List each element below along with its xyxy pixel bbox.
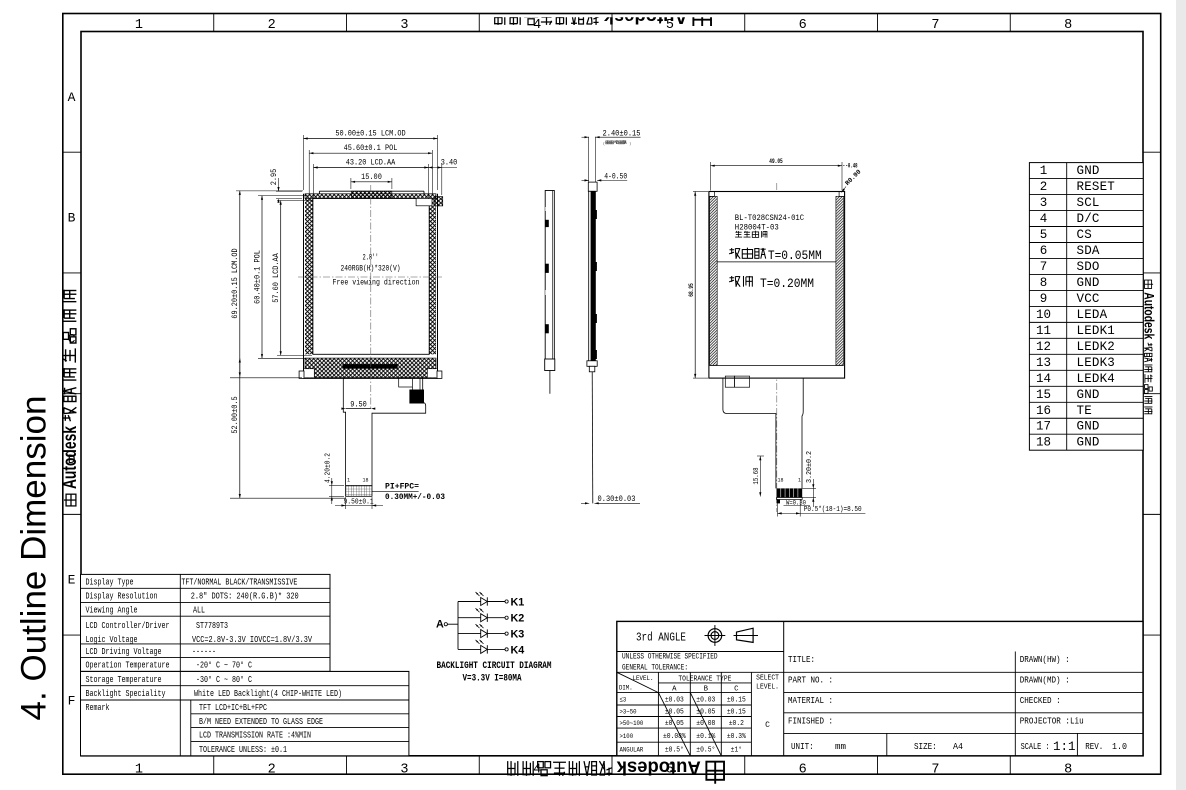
svg-text:DRAWN(HW) :: DRAWN(HW) : — [1020, 654, 1070, 665]
svg-text:7: 7 — [931, 18, 939, 33]
svg-text:1: 1 — [798, 478, 801, 484]
svg-text:R0.90: R0.90 — [844, 168, 863, 187]
svg-text:6: 6 — [799, 762, 807, 777]
svg-text:SDO: SDO — [1077, 260, 1100, 274]
svg-text:TOLERANCE TYPE: TOLERANCE TYPE — [678, 675, 731, 683]
svg-text:LCD Controller/Driver: LCD Controller/Driver — [86, 620, 170, 631]
svg-text:RESET: RESET — [1077, 180, 1116, 194]
svg-text:9: 9 — [1040, 292, 1048, 306]
svg-text:MATERIAL :: MATERIAL : — [788, 695, 833, 706]
svg-text:6: 6 — [1040, 244, 1048, 258]
svg-text:LEDK4: LEDK4 — [1077, 372, 1116, 386]
svg-text:2: 2 — [268, 18, 276, 33]
svg-text:16: 16 — [1036, 404, 1051, 418]
svg-text:ALL: ALL — [193, 605, 205, 616]
svg-text:VCC: VCC — [1077, 292, 1100, 306]
svg-text:-0.48: -0.48 — [846, 162, 858, 169]
svg-text:LEVEL.: LEVEL. — [633, 675, 654, 683]
svg-text:TE: TE — [1077, 404, 1092, 418]
svg-text:K1: K1 — [511, 597, 525, 609]
svg-text:±0.5°: ±0.5° — [665, 746, 684, 755]
svg-text:1: 1 — [135, 762, 143, 777]
svg-text:Operation Temperature: Operation Temperature — [86, 660, 170, 671]
svg-text:4. Outline Dimension: 4. Outline Dimension — [15, 396, 54, 721]
svg-text:B/M NEED EXTENDED TO GLASS EDG: B/M NEED EXTENDED TO GLASS EDGE — [199, 716, 323, 727]
svg-text:2.40±0.15: 2.40±0.15 — [603, 129, 641, 138]
svg-text:2.95: 2.95 — [271, 168, 279, 185]
svg-text:Autodesk: Autodesk — [60, 426, 81, 489]
svg-text:±0.03: ±0.03 — [665, 696, 684, 704]
svg-text:10: 10 — [1036, 308, 1051, 322]
svg-text:White LED Backlight(4 CHIP-WHI: White LED Backlight(4 CHIP-WHITE LED) — [194, 688, 342, 699]
svg-text:18: 18 — [777, 478, 783, 484]
svg-text:68.95: 68.95 — [688, 283, 695, 297]
svg-text:50.00±0.15 LCM.OD: 50.00±0.15 LCM.OD — [335, 130, 405, 139]
svg-text:Autodesk: Autodesk — [603, 6, 687, 27]
svg-text:±0.15: ±0.15 — [727, 696, 746, 704]
svg-text:15.00: 15.00 — [361, 173, 382, 182]
svg-text:VCC=2.8V-3.3V IOVCC=1.8V/3.3V: VCC=2.8V-3.3V IOVCC=1.8V/3.3V — [192, 634, 312, 645]
svg-text:Display Type: Display Type — [86, 577, 134, 588]
svg-text:LEDK3: LEDK3 — [1077, 356, 1116, 370]
svg-text:PI+FPC=: PI+FPC= — [385, 481, 419, 491]
svg-text:±1°: ±1° — [731, 746, 742, 755]
svg-text:240RGB(H)*320(V): 240RGB(H)*320(V) — [341, 265, 401, 274]
svg-text:-20° C ~ 70° C: -20° C ~ 70° C — [196, 660, 252, 671]
svg-text:2.8'': 2.8'' — [363, 254, 379, 263]
svg-text:3.40: 3.40 — [441, 159, 458, 168]
svg-text:V=3.3V I=80MA: V=3.3V I=80MA — [463, 674, 523, 685]
svg-text:PROJECTOR :Liu: PROJECTOR :Liu — [1020, 716, 1084, 727]
svg-text:LEVEL.: LEVEL. — [756, 683, 779, 691]
svg-text:TFT LCD+IC+BL+FPC: TFT LCD+IC+BL+FPC — [199, 702, 267, 713]
svg-text:SCALE :: SCALE : — [1021, 741, 1050, 752]
svg-text:18: 18 — [362, 478, 368, 484]
svg-text:LCD Driving Voltage: LCD Driving Voltage — [86, 646, 162, 657]
svg-text:A: A — [68, 90, 76, 105]
svg-text:2: 2 — [1040, 180, 1048, 194]
svg-text:±0.05: ±0.05 — [665, 708, 684, 716]
svg-text:12: 12 — [1036, 340, 1051, 354]
svg-text:4: 4 — [1040, 212, 1048, 226]
svg-text:C: C — [734, 686, 739, 694]
svg-text:K3: K3 — [511, 629, 525, 641]
svg-text:SDA: SDA — [1077, 244, 1100, 258]
svg-text:LCD TRANSMISSION RATE :4%MIN: LCD TRANSMISSION RATE :4%MIN — [199, 730, 311, 741]
svg-text:GND: GND — [1077, 276, 1100, 290]
svg-text:-30° C ~ 80° C: -30° C ~ 80° C — [196, 674, 252, 685]
svg-text:49.05: 49.05 — [769, 158, 783, 165]
svg-text:T=0.20MM: T=0.20MM — [760, 276, 814, 291]
svg-text:ST7789T3: ST7789T3 — [196, 620, 228, 631]
svg-text:1: 1 — [135, 18, 143, 33]
svg-text:8: 8 — [1040, 276, 1048, 290]
svg-text:UNLESS OTHERWISE SPECIFIED: UNLESS OTHERWISE SPECIFIED — [622, 653, 718, 662]
svg-text:Backlight Speciality: Backlight Speciality — [86, 688, 166, 699]
svg-text:CS: CS — [1077, 228, 1092, 242]
svg-text:Autodesk: Autodesk — [616, 757, 700, 778]
svg-text:15: 15 — [1036, 388, 1051, 402]
svg-text:>100: >100 — [620, 733, 634, 741]
svg-text:BACKLIGHT CIRCUIT DIAGRAM: BACKLIGHT CIRCUIT DIAGRAM — [437, 661, 552, 672]
svg-text:±0.2: ±0.2 — [729, 720, 744, 728]
svg-text:±0.08%: ±0.08% — [663, 733, 686, 741]
svg-text:): ) — [629, 141, 631, 146]
svg-text:>50~100: >50~100 — [620, 720, 644, 728]
svg-text:17: 17 — [1036, 420, 1051, 434]
svg-text:A4: A4 — [953, 741, 963, 752]
svg-text:FINISHED :: FINISHED : — [788, 716, 833, 727]
svg-text:GND: GND — [1077, 420, 1100, 434]
svg-text:0.30±0.03: 0.30±0.03 — [598, 495, 636, 504]
svg-text:4.20±0.2: 4.20±0.2 — [325, 453, 333, 483]
svg-text:6: 6 — [799, 18, 807, 33]
svg-text:TITLE:: TITLE: — [788, 654, 815, 665]
svg-text:mm: mm — [835, 741, 846, 752]
svg-text:3: 3 — [400, 18, 408, 33]
svg-text:7: 7 — [1040, 260, 1048, 274]
svg-text:1: 1 — [347, 478, 350, 484]
svg-text:43.20 LCD.AA: 43.20 LCD.AA — [346, 158, 396, 167]
svg-text:±0.15: ±0.15 — [727, 708, 746, 716]
svg-text:C: C — [765, 721, 770, 730]
svg-text:2: 2 — [268, 762, 276, 777]
svg-text:3: 3 — [1040, 196, 1048, 210]
svg-text:SIZE:: SIZE: — [914, 741, 937, 752]
svg-text:SELECT: SELECT — [756, 674, 779, 682]
svg-text:>3~50: >3~50 — [620, 708, 637, 716]
svg-text:DIM.: DIM. — [619, 685, 633, 693]
svg-text:±0.03: ±0.03 — [696, 696, 715, 704]
svg-text:F: F — [68, 693, 76, 708]
svg-text:GND: GND — [1077, 388, 1100, 402]
svg-text:GND: GND — [1077, 164, 1100, 178]
svg-text:±0.05: ±0.05 — [696, 708, 715, 716]
svg-text:2.8" DOTS: 240(R.G.B)* 320: 2.8" DOTS: 240(R.G.B)* 320 — [191, 591, 299, 602]
svg-text:Storage Temperature: Storage Temperature — [86, 674, 162, 685]
svg-text:57.60 LCD.AA: 57.60 LCD.AA — [273, 253, 281, 303]
svg-text:CHECKED :: CHECKED : — [1020, 695, 1061, 706]
svg-text:LEDK2: LEDK2 — [1077, 340, 1116, 354]
svg-text:9.50: 9.50 — [350, 401, 367, 409]
svg-text:7: 7 — [931, 762, 939, 777]
svg-text:DRAWN(MD) :: DRAWN(MD) : — [1020, 675, 1070, 686]
svg-text:1.0: 1.0 — [1112, 741, 1127, 752]
svg-text:K4: K4 — [511, 644, 525, 656]
svg-text:B: B — [704, 686, 709, 694]
svg-text:Logic Voltage: Logic Voltage — [86, 634, 138, 645]
svg-text:±0.5°: ±0.5° — [696, 746, 715, 755]
svg-text:45.60±0.1 POL: 45.60±0.1 POL — [344, 144, 398, 153]
svg-text:A: A — [672, 686, 677, 694]
svg-text:15.68: 15.68 — [753, 468, 761, 485]
svg-text:8: 8 — [1064, 762, 1072, 777]
svg-text:52.00±0.5: 52.00±0.5 — [232, 396, 240, 434]
svg-text:PART NO. :: PART NO. : — [788, 675, 833, 686]
svg-text:3rd ANGLE: 3rd ANGLE — [636, 632, 686, 645]
svg-text:Viewing Angle: Viewing Angle — [86, 605, 138, 616]
svg-text:LEDK1: LEDK1 — [1077, 324, 1116, 338]
svg-text:Free viewing direction: Free viewing direction — [333, 279, 420, 288]
svg-text:TFT/NORMAL BLACK/TRANSMISSIVE: TFT/NORMAL BLACK/TRANSMISSIVE — [181, 577, 297, 588]
svg-text:0.30MM+/-0.03: 0.30MM+/-0.03 — [385, 492, 445, 502]
svg-text:±0.3%: ±0.3% — [727, 733, 747, 741]
svg-text:9.50±0.1: 9.50±0.1 — [344, 498, 374, 506]
svg-text:UNIT:: UNIT: — [791, 741, 814, 752]
svg-text:B: B — [68, 211, 76, 226]
svg-text:Autodesk: Autodesk — [1142, 292, 1157, 339]
svg-text:5: 5 — [1040, 228, 1048, 242]
svg-text:LEDA: LEDA — [1077, 308, 1108, 322]
svg-text:13: 13 — [1036, 356, 1051, 370]
svg-text:P0.5*(18-1)=8.50: P0.5*(18-1)=8.50 — [804, 506, 862, 514]
svg-text:69.20±0.15 LCM.OD: 69.20±0.15 LCM.OD — [232, 248, 240, 319]
svg-text:REV.: REV. — [1085, 741, 1103, 752]
svg-text:1:1: 1:1 — [1053, 740, 1076, 754]
svg-text:11: 11 — [1036, 324, 1051, 338]
svg-text:3: 3 — [400, 762, 408, 777]
svg-text:TOLERANCE UNLESS: ±0.1: TOLERANCE UNLESS: ±0.1 — [199, 744, 287, 755]
svg-text:T=0.05MM: T=0.05MM — [768, 248, 822, 263]
svg-text:14: 14 — [1036, 372, 1051, 386]
svg-text:18: 18 — [1036, 436, 1051, 450]
svg-text:3.20±0.2: 3.20±0.2 — [806, 451, 814, 483]
svg-text:A: A — [436, 619, 444, 631]
svg-text:ANGULAR: ANGULAR — [620, 747, 644, 755]
svg-text:K2: K2 — [511, 613, 525, 625]
svg-text:(: ( — [603, 141, 605, 146]
svg-text:GENERAL TOLERANCE:: GENERAL TOLERANCE: — [622, 663, 688, 672]
svg-text:1: 1 — [1040, 164, 1048, 178]
svg-text:E: E — [68, 573, 76, 588]
svg-text:≤3: ≤3 — [620, 696, 627, 704]
svg-text:D/C: D/C — [1077, 212, 1100, 226]
svg-text:Remark: Remark — [86, 702, 110, 713]
svg-text:Display Resolution: Display Resolution — [86, 591, 158, 602]
svg-text:SCL: SCL — [1077, 196, 1100, 210]
svg-text:H28004T-03: H28004T-03 — [735, 222, 779, 232]
svg-text:------: ------ — [192, 646, 216, 657]
svg-text:8: 8 — [1064, 18, 1072, 33]
svg-text:60.40±0.1 POL: 60.40±0.1 POL — [255, 250, 263, 304]
svg-text:GND: GND — [1077, 436, 1100, 450]
